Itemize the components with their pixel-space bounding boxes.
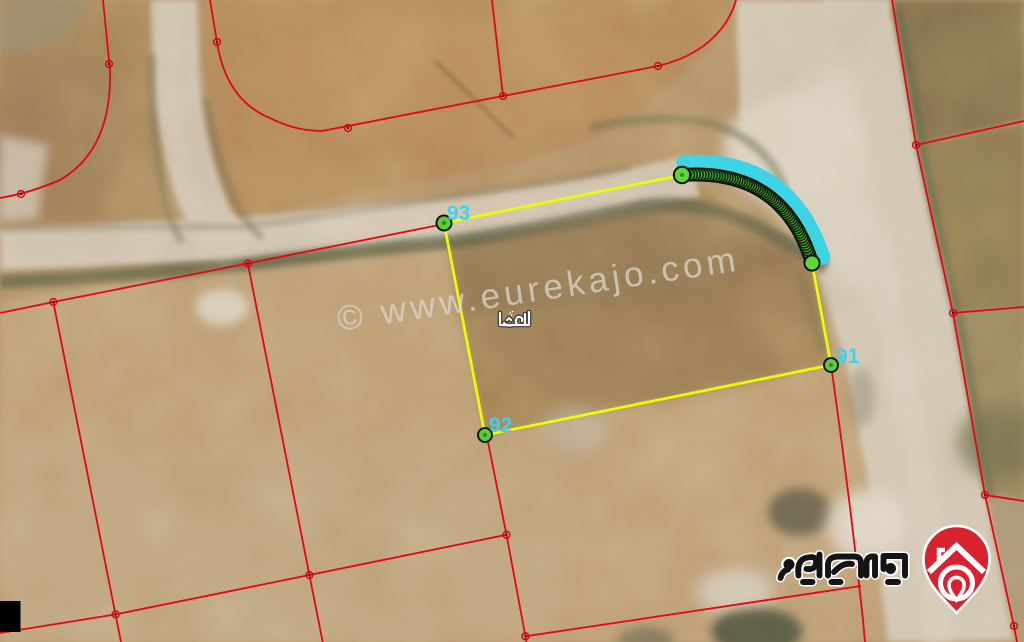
svg-text:91: 91 [836, 345, 860, 368]
svg-text:93: 93 [447, 202, 470, 225]
svg-text:92: 92 [489, 414, 512, 437]
